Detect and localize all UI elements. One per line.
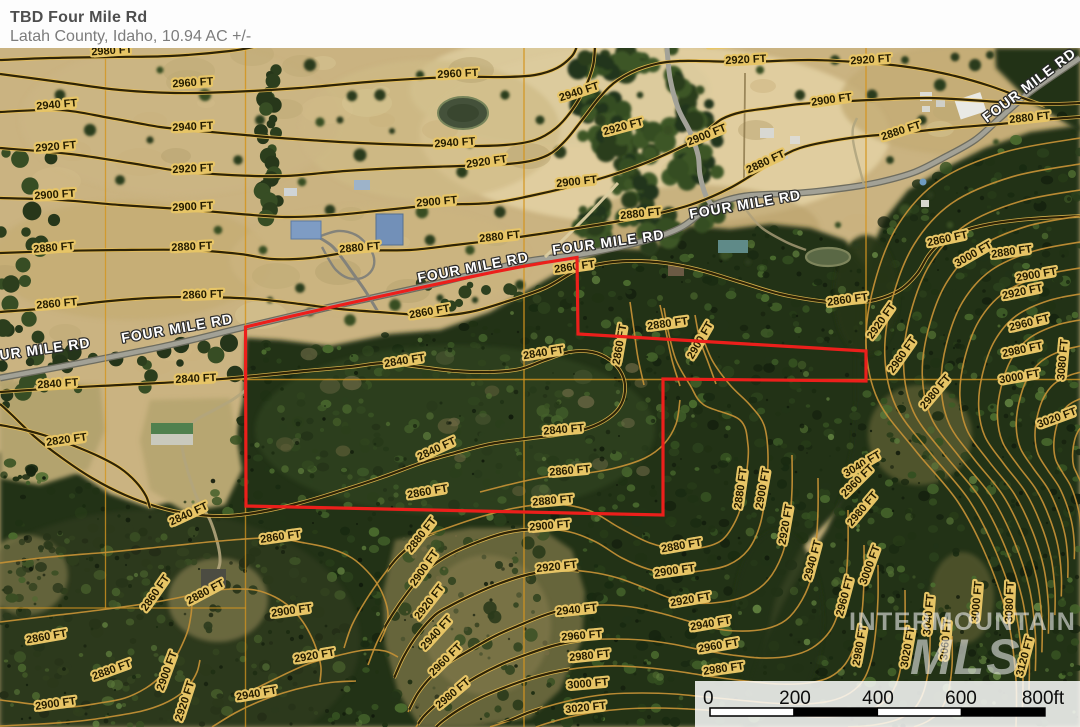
svg-text:0: 0 — [703, 688, 714, 709]
svg-text:2940 FT: 2940 FT — [172, 120, 214, 134]
svg-text:2840 FT: 2840 FT — [175, 372, 217, 386]
svg-text:MLS: MLS — [910, 629, 1022, 685]
svg-text:2920 FT: 2920 FT — [725, 53, 767, 67]
svg-text:800ft: 800ft — [1022, 688, 1065, 709]
svg-text:2900 FT: 2900 FT — [172, 200, 214, 214]
svg-text:2860 FT: 2860 FT — [182, 288, 224, 301]
svg-text:600: 600 — [945, 688, 977, 709]
svg-text:2960 FT: 2960 FT — [437, 67, 479, 81]
svg-text:200: 200 — [779, 688, 811, 709]
svg-text:2920 FT: 2920 FT — [172, 162, 214, 176]
svg-text:2880 FT: 2880 FT — [171, 240, 213, 254]
svg-text:400: 400 — [862, 688, 894, 709]
